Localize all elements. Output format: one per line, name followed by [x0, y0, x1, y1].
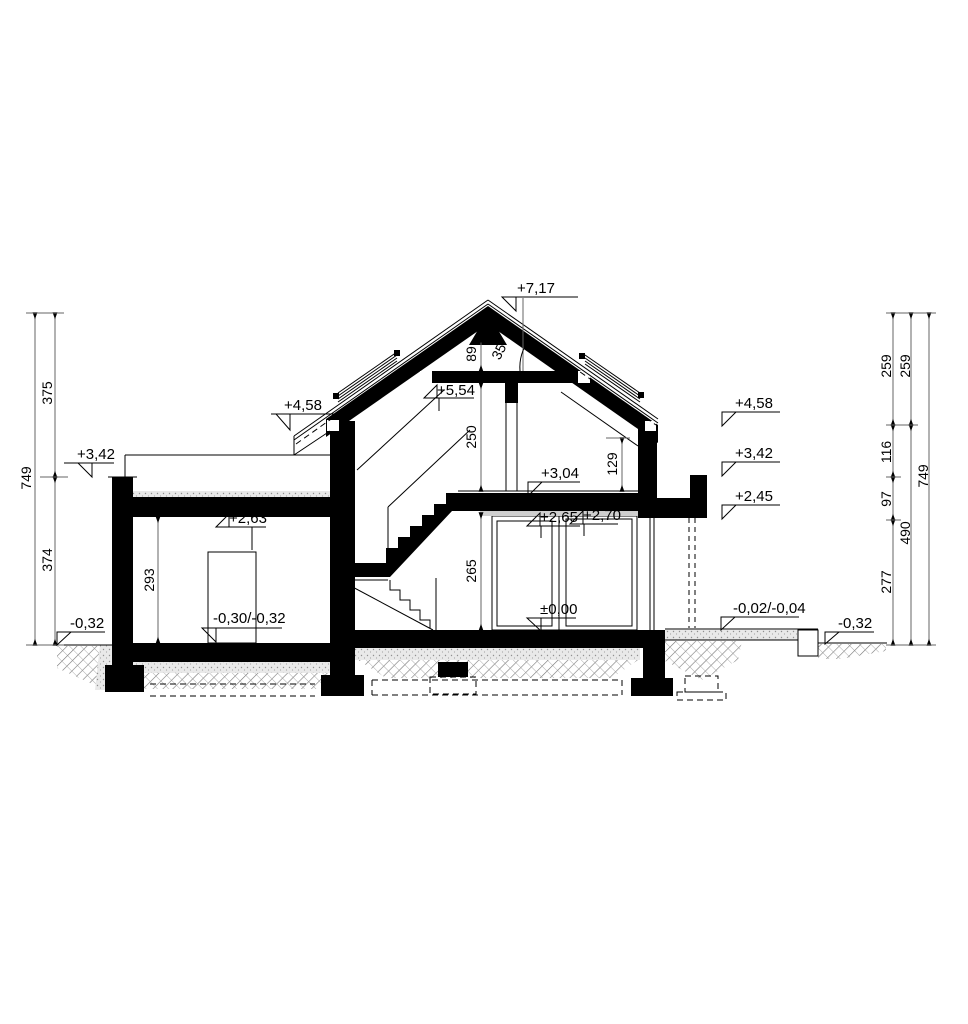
chimney-foundation [438, 662, 468, 677]
elevation-glazing-right: +2,70 [583, 508, 621, 524]
wall-middle [330, 421, 355, 675]
elevation-garage-ceiling: +2,63 [229, 511, 267, 527]
dim-attic-height: 250 [464, 425, 478, 448]
dim-right-outer: 749 [916, 464, 930, 487]
garage-floor-slab [133, 643, 330, 662]
dim-right-inner-2: 116 [879, 441, 893, 463]
foundation-wall-right [643, 630, 665, 678]
footing-middle [321, 675, 364, 696]
dim-right-middle-1: 259 [898, 354, 912, 377]
dim-left-overall: 749 [19, 466, 33, 489]
wall-garage-left [112, 477, 133, 665]
elevation-eaves-right: +4,58 [735, 396, 773, 412]
stair-flight-cut [343, 493, 458, 577]
elevation-flatroof-right: +3,42 [735, 446, 773, 462]
dim-left-upper: 375 [40, 381, 54, 404]
chimney-top [505, 383, 518, 403]
dim-garage-height: 293 [142, 568, 156, 591]
dim-ground-height: 265 [464, 559, 478, 582]
elevation-grade-right: -0,32 [838, 616, 872, 632]
elevation-garage-floor: -0,30/-0,32 [213, 611, 286, 627]
footing-right [631, 678, 673, 696]
skylight-cap [579, 353, 585, 359]
dim-right-inner-4: 277 [879, 570, 893, 593]
dim-left-lower: 374 [40, 548, 54, 571]
canopy-band [638, 498, 707, 518]
elevation-canopy: +2,45 [735, 489, 773, 505]
structure-black [105, 306, 707, 696]
dim-ridge-height: 89 [464, 346, 478, 362]
architectural-section: +7,17 +5,54 +4,58 +3,42 -0,32 +2,63 -0,3… [0, 0, 968, 1024]
dim-knee-height: 129 [605, 452, 619, 475]
elevation-flatroof-left: +3,42 [77, 447, 115, 463]
dim-right-inner-1: 259 [879, 354, 893, 377]
dim-right-inner-3: 97 [879, 491, 893, 507]
elevation-ground-floor: ±0,00 [540, 602, 577, 618]
elevation-collar: +5,54 [437, 383, 475, 399]
elevation-attic-floor: +3,04 [541, 466, 579, 482]
elevation-eaves-left: +4,58 [284, 398, 322, 414]
elevation-grade-left: -0,32 [70, 616, 104, 632]
ground-floor-slab [355, 630, 645, 648]
dimension-lines [26, 298, 936, 645]
knee-wall-right [638, 428, 657, 498]
elevation-ridge: +7,17 [517, 281, 555, 297]
footing-garage-left [105, 665, 144, 692]
dim-right-middle-2: 490 [898, 521, 912, 544]
elevation-terrace: -0,02/-0,04 [733, 601, 806, 617]
canopy-edge-beam [690, 475, 707, 502]
section-linework [0, 0, 968, 1024]
elevation-glazing-left: +2,65 [540, 510, 578, 526]
